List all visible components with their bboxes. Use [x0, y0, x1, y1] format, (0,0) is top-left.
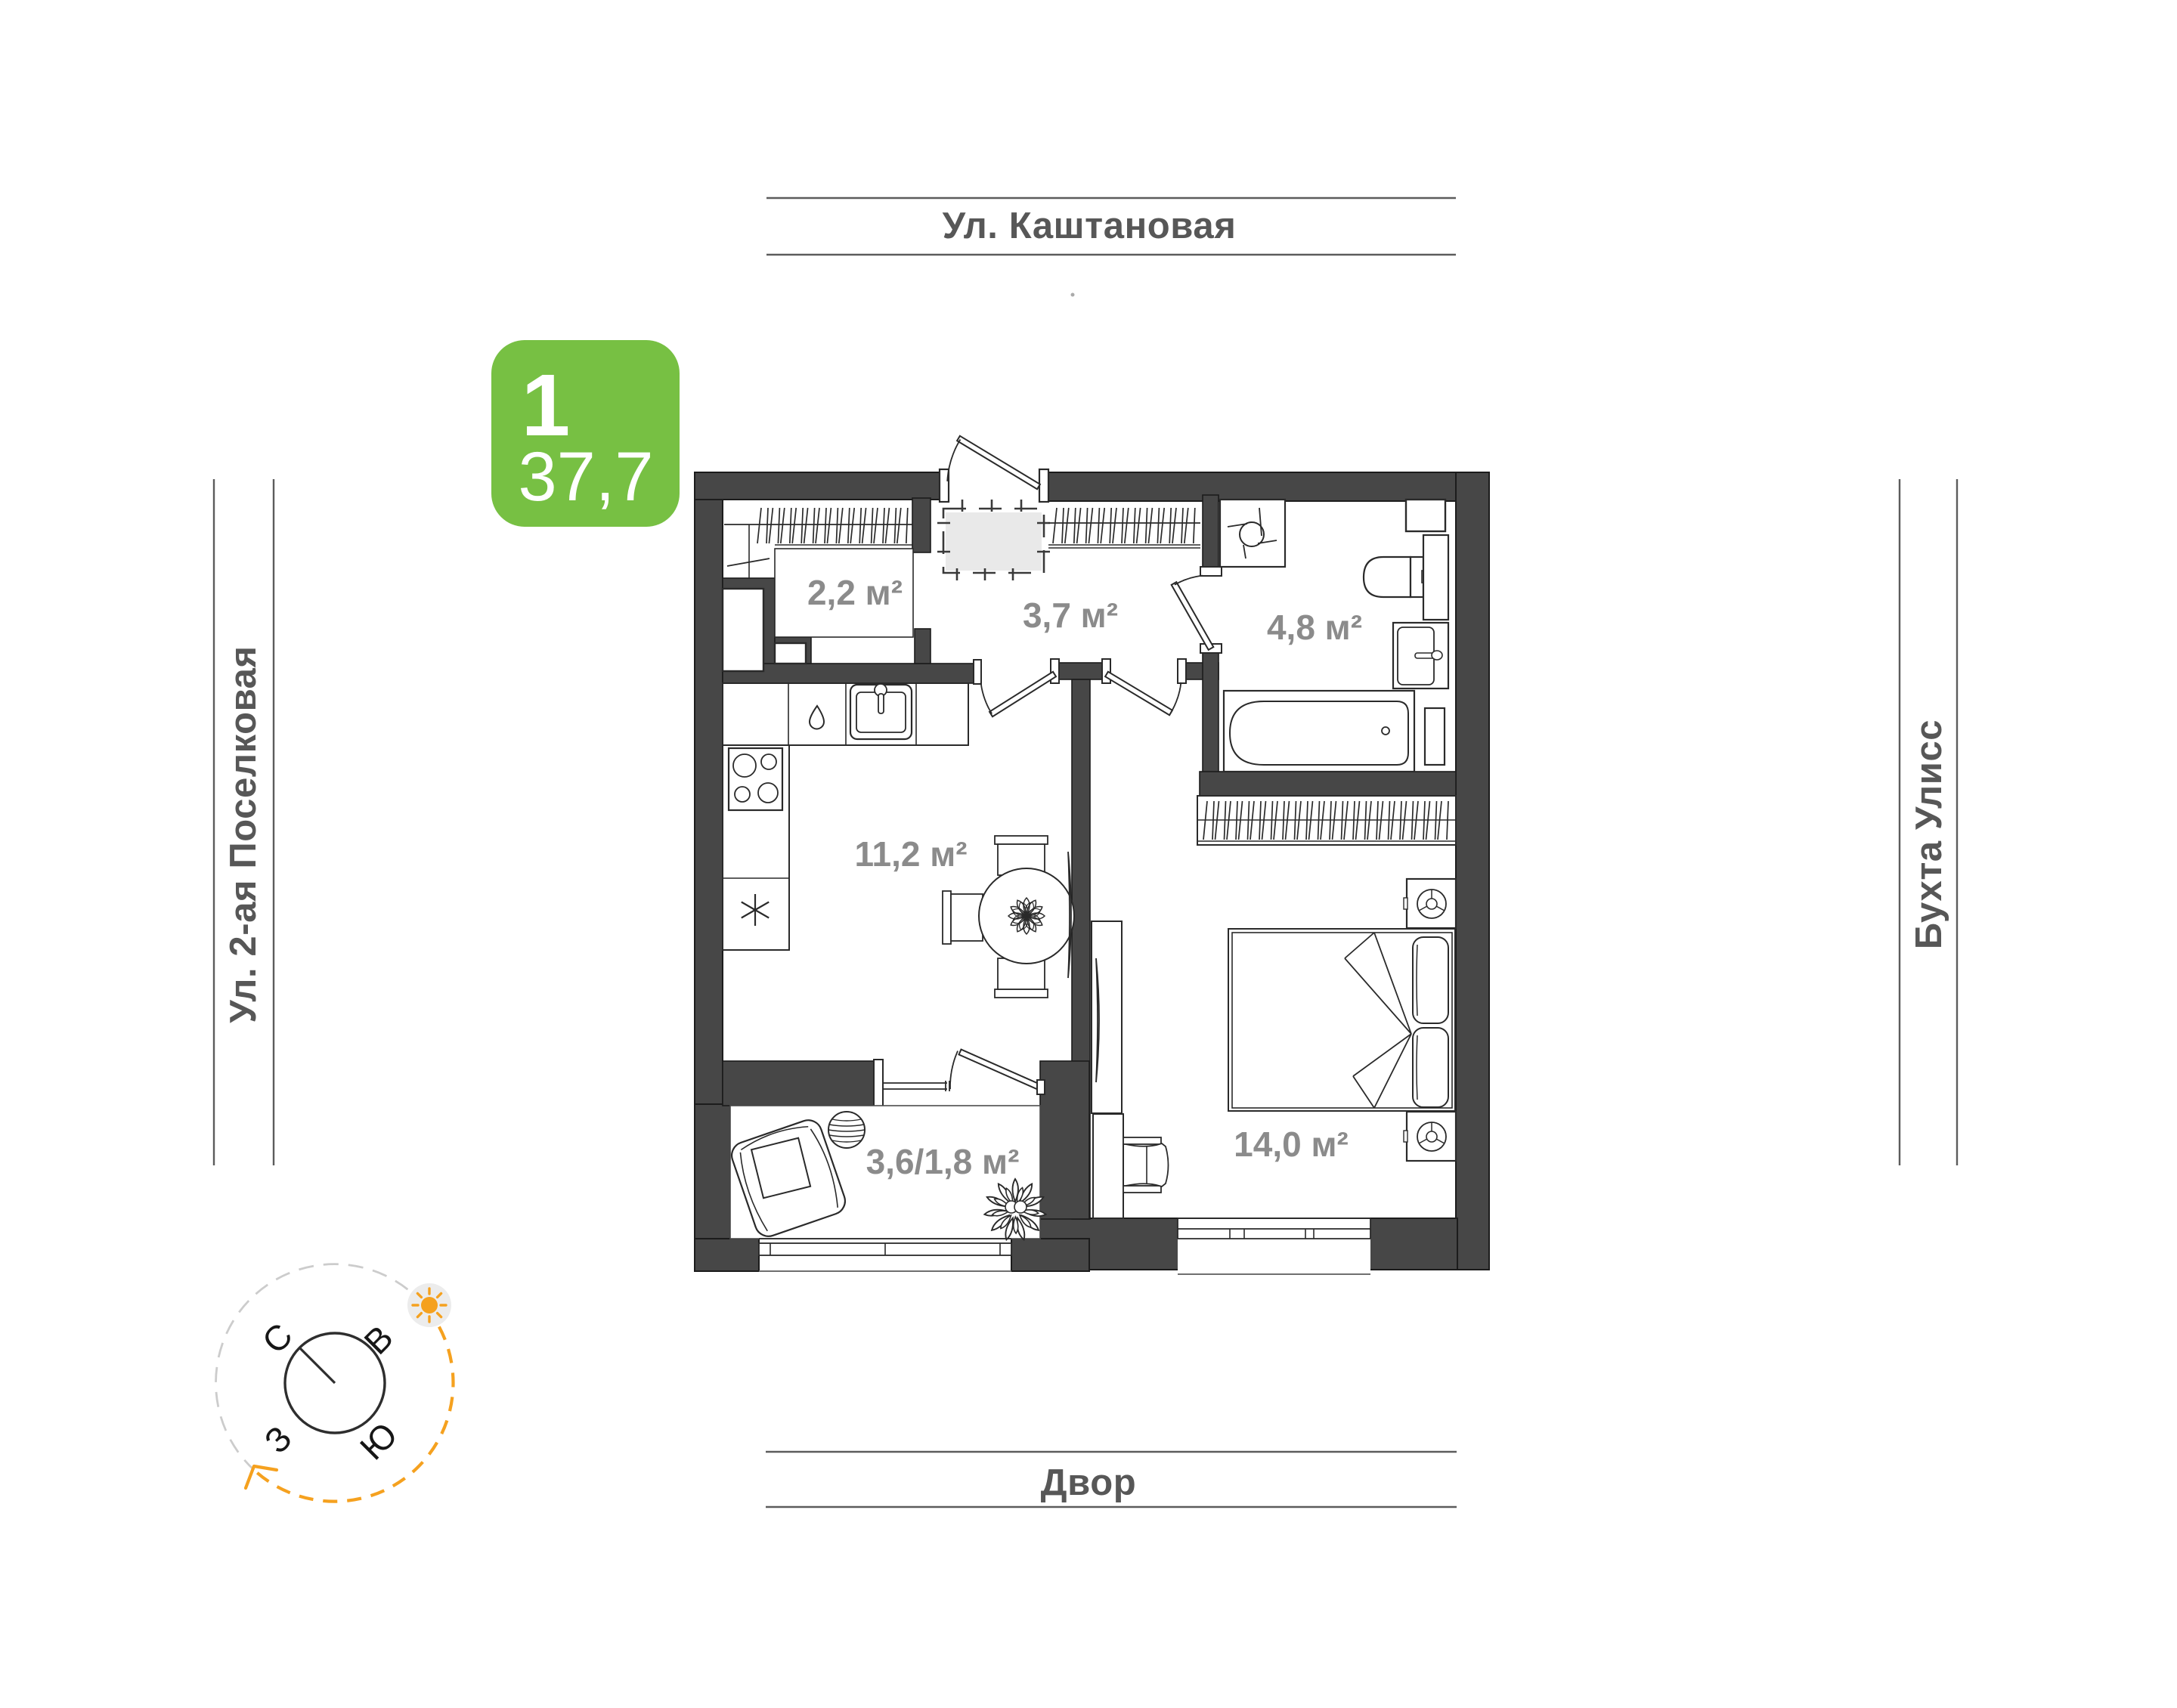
svg-text:37,7: 37,7 — [518, 438, 653, 515]
svg-text:3,7 м²: 3,7 м² — [1023, 596, 1118, 635]
svg-text:4,8 м²: 4,8 м² — [1267, 608, 1362, 647]
svg-text:Ул. Каштановая: Ул. Каштановая — [943, 206, 1237, 246]
svg-text:14,0 м²: 14,0 м² — [1234, 1125, 1349, 1164]
svg-text:Ул. 2-ая Поселковая: Ул. 2-ая Поселковая — [223, 645, 264, 1023]
svg-text:2,2 м²: 2,2 м² — [807, 573, 903, 612]
svg-text:Бухта Улисс: Бухта Улисс — [1909, 719, 1949, 949]
svg-text:3,6/1,8 м²: 3,6/1,8 м² — [866, 1142, 1020, 1181]
svg-text:Двор: Двор — [1041, 1462, 1137, 1503]
svg-text:11,2 м²: 11,2 м² — [854, 834, 967, 874]
svg-text:З: З — [256, 1418, 299, 1460]
